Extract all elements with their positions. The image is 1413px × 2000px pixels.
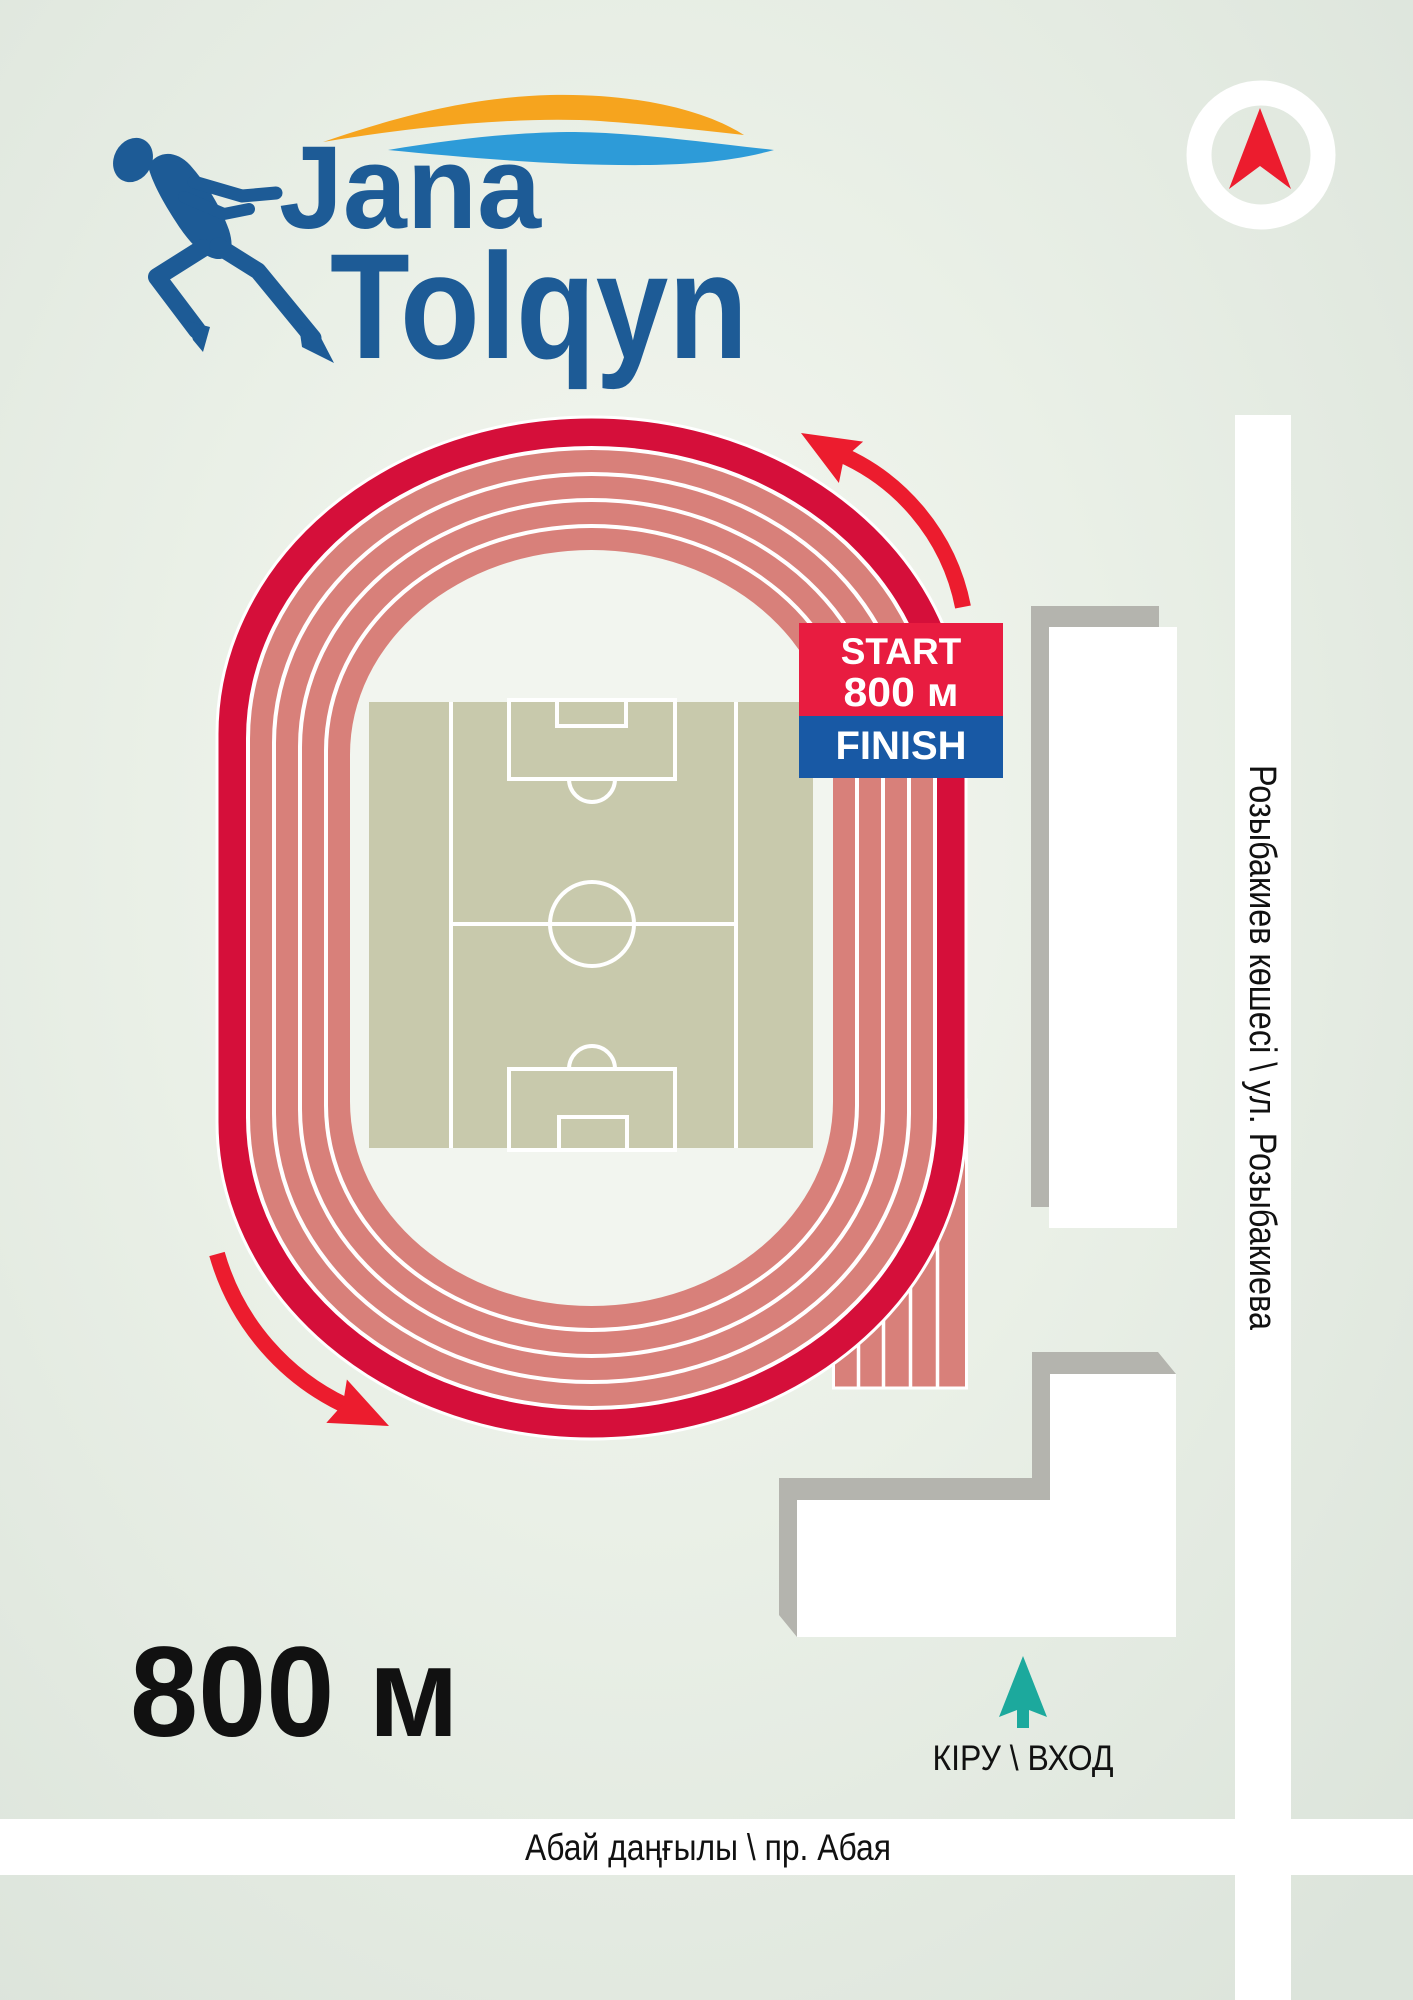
svg-text:800 м: 800 м [130,1621,459,1764]
svg-text:START: START [841,631,962,672]
svg-text:800 м: 800 м [844,669,959,715]
svg-text:FINISH: FINISH [835,724,966,768]
svg-text:Абай даңғылы \ пр. Абая: Абай даңғылы \ пр. Абая [525,1827,891,1868]
svg-text:КІРУ \ ВХОД: КІРУ \ ВХОД [933,1739,1114,1778]
svg-text:Розыбакиев көшесі \ ул. Розыба: Розыбакиев көшесі \ ул. Розыбакиева [1241,765,1283,1331]
svg-text:Tolqyn: Tolqyn [330,222,748,390]
